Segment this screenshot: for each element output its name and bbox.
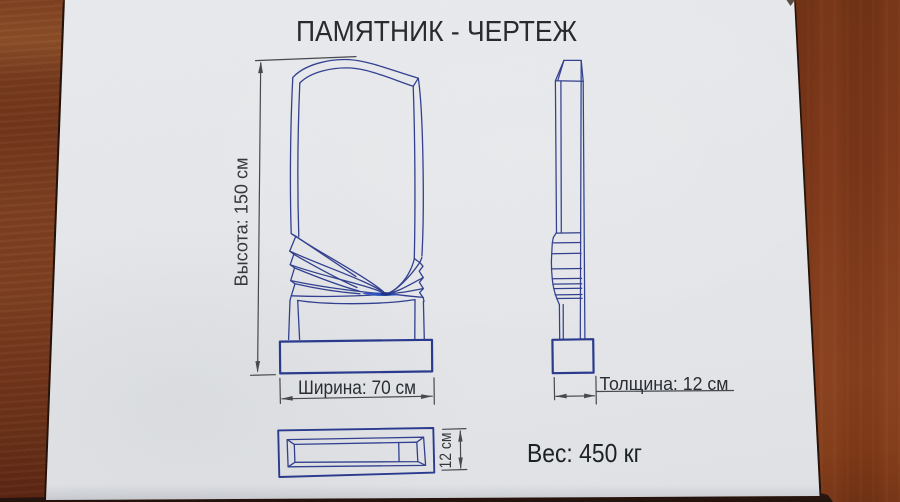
- svg-text:Толщина: 12 см: Толщина: 12 см: [600, 373, 729, 394]
- svg-text:Ширина: 70 см: Ширина: 70 см: [298, 378, 416, 399]
- svg-text:Высота: 150 см: Высота: 150 см: [231, 158, 252, 287]
- svg-text:ПАМЯТНИК - ЧЕРТЕЖ: ПАМЯТНИК - ЧЕРТЕЖ: [296, 16, 577, 48]
- svg-text:12 см: 12 см: [437, 433, 455, 469]
- svg-text:Вес: 450 кг: Вес: 450 кг: [527, 438, 642, 468]
